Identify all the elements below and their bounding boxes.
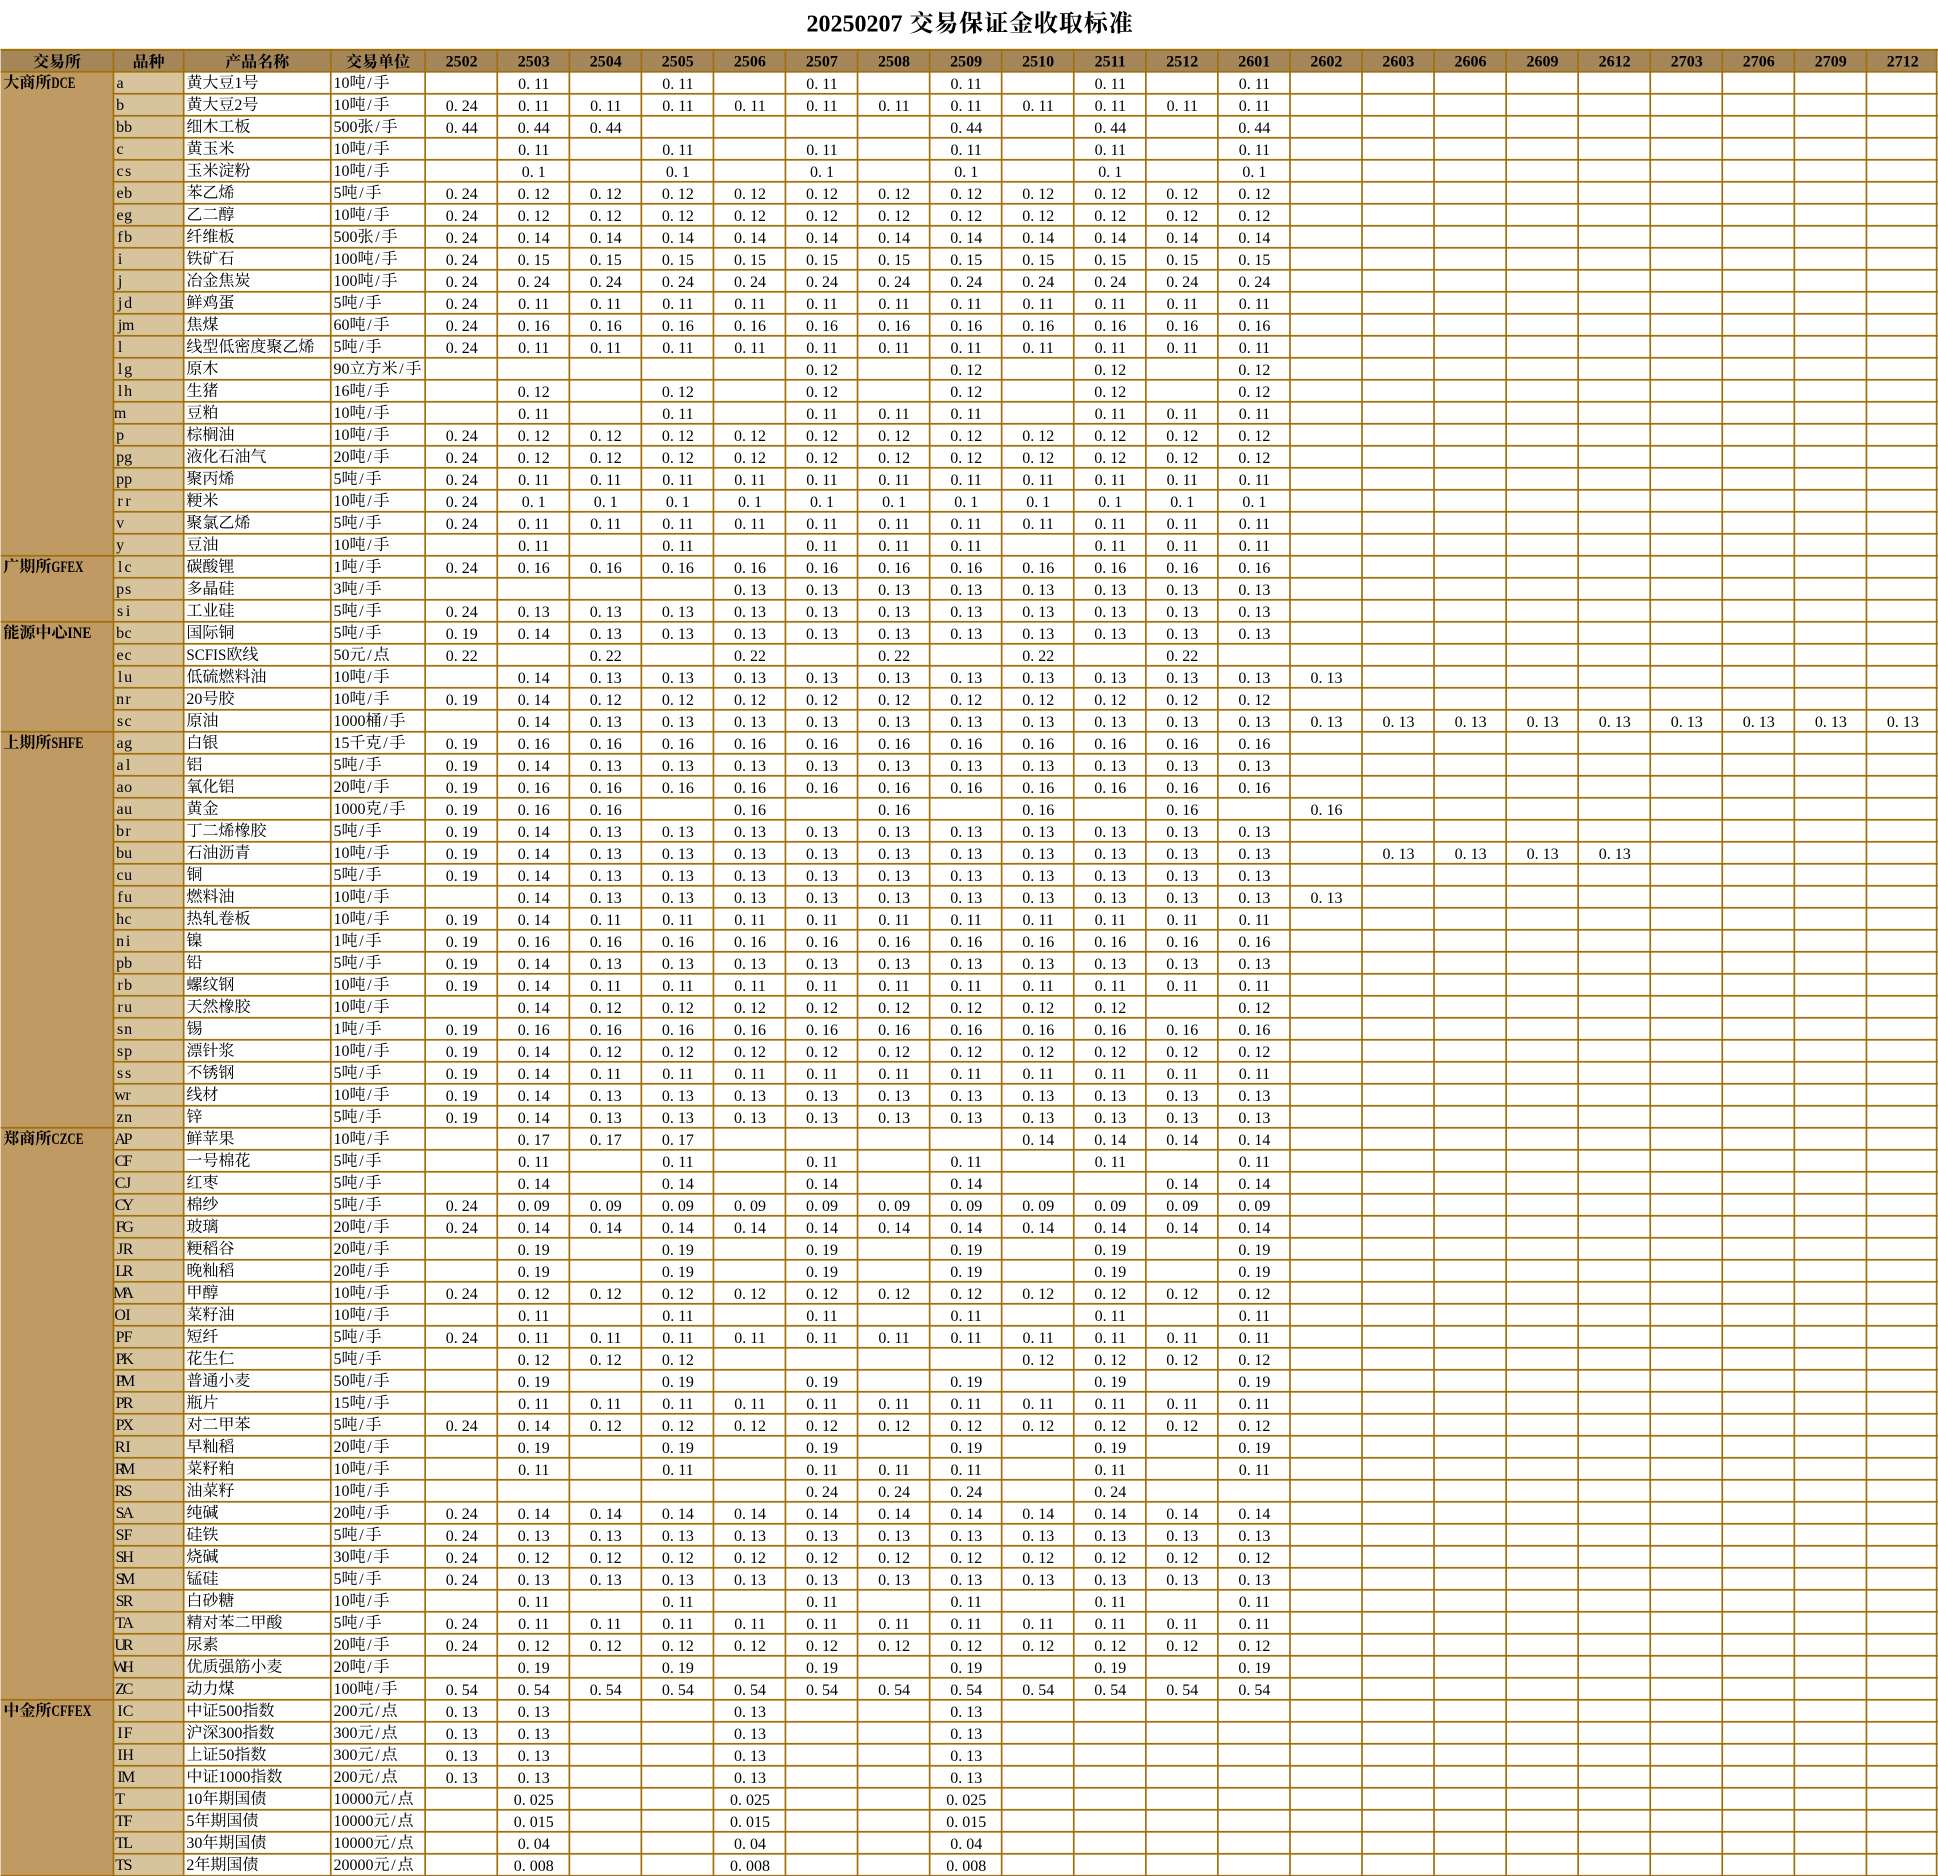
svg-text:0. 16: 0. 16 [590, 802, 622, 819]
svg-text:10: 10 [334, 889, 350, 906]
svg-text:10: 10 [334, 97, 350, 114]
svg-text:0. 19: 0. 19 [806, 1264, 838, 1281]
svg-text:/: / [383, 801, 388, 818]
svg-text:0. 1: 0. 1 [666, 494, 690, 511]
svg-text:0. 14: 0. 14 [950, 1176, 982, 1193]
svg-text:/: / [367, 999, 372, 1016]
svg-text:0. 19: 0. 19 [446, 846, 478, 863]
svg-text:0. 09: 0. 09 [734, 1198, 766, 1215]
svg-text:0. 19: 0. 19 [446, 1088, 478, 1105]
svg-text:0. 1: 0. 1 [1026, 494, 1050, 511]
svg-text:0. 16: 0. 16 [878, 780, 910, 797]
svg-text:0. 14: 0. 14 [518, 1066, 550, 1083]
svg-text:0. 12: 0. 12 [1094, 1044, 1126, 1061]
svg-text:0. 19: 0. 19 [518, 1242, 550, 1259]
svg-text:0. 16: 0. 16 [878, 1022, 910, 1039]
svg-text:0. 12: 0. 12 [950, 1550, 982, 1567]
svg-text:0. 11: 0. 11 [806, 978, 837, 995]
svg-text:/: / [359, 1197, 364, 1214]
svg-text:/: / [367, 1263, 372, 1280]
svg-text:X: X [122, 1417, 134, 1434]
svg-text:0. 16: 0. 16 [590, 934, 622, 951]
svg-text:0. 16: 0. 16 [518, 1022, 550, 1039]
svg-text:0. 16: 0. 16 [806, 318, 838, 335]
svg-text:0. 12: 0. 12 [1022, 1286, 1054, 1303]
svg-text:0. 1: 0. 1 [1098, 494, 1122, 511]
svg-text:0. 12: 0. 12 [950, 384, 982, 401]
svg-text:c: c [125, 713, 132, 730]
svg-text:0. 008: 0. 008 [514, 1858, 554, 1875]
svg-text:0. 13: 0. 13 [1022, 626, 1054, 643]
svg-text:0. 11: 0. 11 [1239, 1594, 1270, 1611]
svg-text:100: 100 [334, 1681, 358, 1698]
svg-text:/: / [367, 1373, 372, 1390]
svg-text:0. 13: 0. 13 [518, 1748, 550, 1765]
svg-text:/: / [367, 911, 372, 928]
svg-text:0. 13: 0. 13 [734, 714, 766, 731]
svg-text:0. 13: 0. 13 [1599, 846, 1631, 863]
svg-text:5: 5 [334, 1197, 342, 1214]
svg-text:0. 16: 0. 16 [1022, 780, 1054, 797]
svg-text:0. 54: 0. 54 [734, 1682, 766, 1699]
svg-text:0. 14: 0. 14 [1238, 1506, 1270, 1523]
svg-text:0. 13: 0. 13 [806, 868, 838, 885]
svg-text:/: / [375, 229, 380, 246]
svg-text:/: / [359, 185, 364, 202]
svg-text:0. 11: 0. 11 [950, 1396, 981, 1413]
svg-text:200: 200 [334, 1769, 358, 1786]
svg-text:0. 16: 0. 16 [734, 1022, 766, 1039]
svg-text:b: b [116, 97, 124, 114]
svg-text:0. 12: 0. 12 [1094, 1638, 1126, 1655]
svg-text:d: d [124, 295, 132, 312]
svg-text:20: 20 [334, 1505, 350, 1522]
svg-text:0. 11: 0. 11 [1239, 516, 1270, 533]
svg-text:0. 1: 0. 1 [1242, 164, 1266, 181]
svg-text:0. 44: 0. 44 [446, 120, 478, 137]
svg-text:i: i [126, 933, 131, 950]
svg-text:C: C [123, 1681, 134, 1698]
svg-text:0. 13: 0. 13 [518, 1528, 550, 1545]
svg-text:0. 14: 0. 14 [662, 1220, 694, 1237]
svg-text:0. 11: 0. 11 [518, 1396, 549, 1413]
svg-text:0. 11: 0. 11 [1095, 142, 1126, 159]
svg-text:0. 12: 0. 12 [662, 186, 694, 203]
svg-text:/: / [359, 1021, 364, 1038]
svg-text:GFEX: GFEX [51, 559, 83, 576]
svg-text:0. 13: 0. 13 [1022, 1572, 1054, 1589]
svg-text:2602: 2602 [1310, 54, 1342, 71]
svg-text:5: 5 [334, 471, 342, 488]
svg-text:0. 13: 0. 13 [590, 846, 622, 863]
svg-text:/: / [359, 295, 364, 312]
svg-text:0. 24: 0. 24 [446, 516, 478, 533]
svg-text:/: / [367, 427, 372, 444]
svg-text:0. 13: 0. 13 [950, 670, 982, 687]
svg-text:0. 12: 0. 12 [662, 1550, 694, 1567]
svg-text:10: 10 [334, 1461, 350, 1478]
svg-text:0. 12: 0. 12 [662, 1000, 694, 1017]
svg-text:30: 30 [186, 1835, 202, 1852]
svg-text:0. 14: 0. 14 [518, 824, 550, 841]
svg-text:0. 11: 0. 11 [806, 98, 837, 115]
svg-text:/: / [367, 317, 372, 334]
svg-text:0. 19: 0. 19 [446, 692, 478, 709]
svg-text:0. 12: 0. 12 [518, 428, 550, 445]
svg-text:100: 100 [334, 273, 358, 290]
svg-text:0. 12: 0. 12 [878, 1550, 910, 1567]
svg-text:0. 24: 0. 24 [1094, 274, 1126, 291]
svg-text:0. 15: 0. 15 [1166, 252, 1198, 269]
svg-text:0. 12: 0. 12 [950, 1418, 982, 1435]
svg-text:5: 5 [334, 1109, 342, 1126]
svg-text:10: 10 [334, 141, 350, 158]
svg-text:0. 11: 0. 11 [806, 1616, 837, 1633]
svg-text:5: 5 [334, 1351, 342, 1368]
svg-text:0. 16: 0. 16 [1166, 1022, 1198, 1039]
svg-text:0. 13: 0. 13 [1815, 714, 1847, 731]
svg-text:0. 13: 0. 13 [950, 1704, 982, 1721]
svg-text:/: / [367, 1241, 372, 1258]
svg-text:0. 16: 0. 16 [518, 802, 550, 819]
svg-text:/: / [359, 757, 364, 774]
svg-text:30: 30 [334, 1549, 350, 1566]
svg-text:0. 19: 0. 19 [1094, 1264, 1126, 1281]
svg-text:0. 14: 0. 14 [1238, 1220, 1270, 1237]
svg-text:0. 13: 0. 13 [1166, 846, 1198, 863]
svg-text:0. 16: 0. 16 [1166, 560, 1198, 577]
svg-text:n: n [124, 1109, 132, 1126]
svg-text:0. 14: 0. 14 [1166, 1220, 1198, 1237]
svg-text:0. 12: 0. 12 [1166, 1550, 1198, 1567]
svg-text:0. 13: 0. 13 [806, 582, 838, 599]
svg-text:0. 11: 0. 11 [1239, 340, 1270, 357]
svg-text:/: / [359, 1417, 364, 1434]
svg-text:0. 11: 0. 11 [950, 98, 981, 115]
svg-text:0. 1: 0. 1 [810, 494, 834, 511]
svg-text:0. 13: 0. 13 [1238, 956, 1270, 973]
svg-text:0. 16: 0. 16 [734, 802, 766, 819]
svg-text:/: / [367, 1637, 372, 1654]
svg-text:0. 11: 0. 11 [518, 1308, 549, 1325]
svg-text:0. 12: 0. 12 [518, 1286, 550, 1303]
svg-text:0. 19: 0. 19 [446, 956, 478, 973]
svg-text:0. 11: 0. 11 [1239, 978, 1270, 995]
svg-text:0. 16: 0. 16 [950, 1022, 982, 1039]
svg-text:0. 13: 0. 13 [662, 890, 694, 907]
svg-text:5: 5 [334, 757, 342, 774]
svg-text:/: / [367, 779, 372, 796]
svg-text:0. 16: 0. 16 [806, 736, 838, 753]
svg-text:0. 11: 0. 11 [806, 912, 837, 929]
svg-text:M: M [121, 1571, 135, 1588]
svg-text:0. 13: 0. 13 [1238, 824, 1270, 841]
svg-text:0. 11: 0. 11 [518, 516, 549, 533]
svg-text:5: 5 [334, 1175, 342, 1192]
svg-text:s: s [125, 1065, 131, 1082]
svg-text:0. 12: 0. 12 [1238, 450, 1270, 467]
svg-text:0. 13: 0. 13 [662, 604, 694, 621]
svg-text:0. 13: 0. 13 [1166, 604, 1198, 621]
svg-text:0. 1: 0. 1 [522, 494, 546, 511]
svg-text:0. 22: 0. 22 [1022, 648, 1054, 665]
svg-text:0. 11: 0. 11 [1167, 1396, 1198, 1413]
svg-text:/: / [375, 1703, 380, 1720]
svg-text:0. 11: 0. 11 [1095, 1308, 1126, 1325]
svg-text:R: R [123, 1593, 134, 1610]
svg-text:s: s [117, 1021, 123, 1038]
svg-text:0. 24: 0. 24 [1238, 274, 1270, 291]
svg-text:0. 11: 0. 11 [1022, 1066, 1053, 1083]
svg-text:/: / [367, 845, 372, 862]
svg-text:0. 13: 0. 13 [1022, 582, 1054, 599]
svg-text:0. 11: 0. 11 [662, 1066, 693, 1083]
svg-text:0. 13: 0. 13 [878, 714, 910, 731]
svg-text:0. 12: 0. 12 [662, 208, 694, 225]
svg-text:0. 11: 0. 11 [806, 340, 837, 357]
svg-text:0. 11: 0. 11 [1167, 1066, 1198, 1083]
svg-text:0. 11: 0. 11 [590, 1616, 621, 1633]
svg-text:0. 11: 0. 11 [1022, 296, 1053, 313]
svg-text:0. 1: 0. 1 [522, 164, 546, 181]
svg-text:0. 11: 0. 11 [590, 1396, 621, 1413]
svg-text:0. 025: 0. 025 [514, 1792, 554, 1809]
svg-text:0. 24: 0. 24 [950, 274, 982, 291]
svg-text:0. 14: 0. 14 [518, 956, 550, 973]
svg-text:0. 12: 0. 12 [1022, 1352, 1054, 1369]
svg-text:10: 10 [334, 669, 350, 686]
svg-text:0. 13: 0. 13 [1238, 670, 1270, 687]
svg-text:2603: 2603 [1382, 54, 1414, 71]
svg-text:0. 19: 0. 19 [1238, 1264, 1270, 1281]
svg-text:0. 13: 0. 13 [1166, 868, 1198, 885]
svg-text:e: e [117, 207, 124, 224]
svg-text:0. 22: 0. 22 [446, 648, 478, 665]
svg-text:2510: 2510 [1022, 54, 1054, 71]
svg-text:1: 1 [334, 1021, 342, 1038]
svg-text:0. 13: 0. 13 [806, 626, 838, 643]
svg-text:0. 16: 0. 16 [1094, 736, 1126, 753]
svg-text:/: / [359, 603, 364, 620]
svg-text:g: g [124, 449, 132, 466]
svg-text:0. 13: 0. 13 [1094, 1088, 1126, 1105]
svg-text:0. 13: 0. 13 [1022, 1110, 1054, 1127]
svg-text:0. 12: 0. 12 [806, 428, 838, 445]
svg-text:0. 16: 0. 16 [1238, 560, 1270, 577]
svg-text:/: / [359, 1153, 364, 1170]
svg-text:0. 12: 0. 12 [1094, 428, 1126, 445]
svg-text:0. 11: 0. 11 [1095, 1594, 1126, 1611]
svg-text:a: a [117, 735, 124, 752]
svg-text:10: 10 [334, 1593, 350, 1610]
svg-text:0. 24: 0. 24 [1166, 274, 1198, 291]
svg-text:0. 13: 0. 13 [878, 670, 910, 687]
svg-text:/: / [383, 735, 388, 752]
svg-text:0. 11: 0. 11 [518, 1154, 549, 1171]
svg-text:1000: 1000 [334, 713, 366, 730]
svg-text:DCE: DCE [51, 75, 75, 92]
svg-text:0. 11: 0. 11 [662, 1616, 693, 1633]
svg-text:0. 13: 0. 13 [734, 758, 766, 775]
svg-text:/: / [375, 119, 380, 136]
svg-text:0. 14: 0. 14 [518, 978, 550, 995]
svg-text:0. 24: 0. 24 [446, 1638, 478, 1655]
svg-text:0. 14: 0. 14 [1166, 1176, 1198, 1193]
svg-text:l: l [118, 383, 123, 400]
svg-text:0. 12: 0. 12 [1166, 1352, 1198, 1369]
svg-text:0. 13: 0. 13 [1166, 1110, 1198, 1127]
svg-text:0. 09: 0. 09 [950, 1198, 982, 1215]
svg-text:0. 19: 0. 19 [806, 1242, 838, 1259]
svg-text:0. 14: 0. 14 [1022, 1220, 1054, 1237]
svg-text:0. 1: 0. 1 [1242, 494, 1266, 511]
svg-text:0. 11: 0. 11 [878, 472, 909, 489]
svg-text:0. 16: 0. 16 [950, 560, 982, 577]
svg-text:l: l [126, 757, 131, 774]
svg-text:0. 14: 0. 14 [518, 1000, 550, 1017]
svg-text:/: / [367, 449, 372, 466]
svg-text:i: i [118, 251, 123, 268]
svg-text:0. 12: 0. 12 [518, 384, 550, 401]
svg-text:0. 24: 0. 24 [446, 560, 478, 577]
svg-text:c: c [125, 911, 132, 928]
svg-text:0. 11: 0. 11 [950, 406, 981, 423]
svg-text:0. 11: 0. 11 [950, 142, 981, 159]
svg-text:0. 11: 0. 11 [734, 1616, 765, 1633]
svg-text:0. 12: 0. 12 [1022, 1638, 1054, 1655]
svg-text:F: F [124, 1813, 133, 1830]
svg-text:0. 11: 0. 11 [590, 340, 621, 357]
svg-text:0. 12: 0. 12 [1094, 186, 1126, 203]
svg-text:0. 11: 0. 11 [806, 1308, 837, 1325]
svg-text:0. 12: 0. 12 [1022, 450, 1054, 467]
svg-text:l: l [118, 559, 123, 576]
svg-text:0. 19: 0. 19 [662, 1440, 694, 1457]
svg-text:5: 5 [334, 295, 342, 312]
svg-text:0. 13: 0. 13 [1166, 758, 1198, 775]
svg-text:2511: 2511 [1095, 54, 1126, 71]
svg-text:b: b [124, 977, 132, 994]
svg-text:0. 24: 0. 24 [446, 1198, 478, 1215]
svg-text:0. 13: 0. 13 [1166, 1088, 1198, 1105]
svg-text:0. 12: 0. 12 [590, 692, 622, 709]
svg-text:0. 09: 0. 09 [1022, 1198, 1054, 1215]
svg-text:r: r [125, 823, 131, 840]
svg-text:0. 13: 0. 13 [950, 582, 982, 599]
svg-text:/: / [367, 1483, 372, 1500]
svg-text:0. 11: 0. 11 [806, 538, 837, 555]
svg-text:/: / [391, 1791, 396, 1808]
svg-text:0. 14: 0. 14 [662, 230, 694, 247]
svg-text:b: b [124, 185, 132, 202]
svg-text:0. 19: 0. 19 [662, 1660, 694, 1677]
svg-text:0. 09: 0. 09 [590, 1198, 622, 1215]
svg-text:0. 13: 0. 13 [446, 1770, 478, 1787]
svg-text:c: c [117, 141, 124, 158]
svg-text:0. 19: 0. 19 [950, 1374, 982, 1391]
svg-text:0. 12: 0. 12 [950, 1638, 982, 1655]
svg-text:c: c [117, 163, 124, 180]
svg-text:0. 11: 0. 11 [590, 296, 621, 313]
svg-text:/: / [359, 471, 364, 488]
svg-text:H: H [122, 1747, 134, 1764]
svg-text:1: 1 [334, 933, 342, 950]
svg-text:0. 16: 0. 16 [1311, 802, 1343, 819]
svg-text:0. 13: 0. 13 [734, 582, 766, 599]
svg-text:0. 13: 0. 13 [734, 1726, 766, 1743]
svg-text:0. 11: 0. 11 [806, 1066, 837, 1083]
svg-text:S: S [124, 1857, 133, 1874]
svg-text:0. 13: 0. 13 [1094, 846, 1126, 863]
svg-text:0. 11: 0. 11 [734, 978, 765, 995]
svg-text:0. 11: 0. 11 [878, 1330, 909, 1347]
svg-text:0. 12: 0. 12 [518, 186, 550, 203]
svg-text:0. 13: 0. 13 [1166, 824, 1198, 841]
svg-text:20: 20 [334, 779, 350, 796]
svg-text:0. 24: 0. 24 [446, 450, 478, 467]
svg-text:0. 13: 0. 13 [806, 714, 838, 731]
svg-text:0. 16: 0. 16 [950, 780, 982, 797]
svg-text:0. 025: 0. 025 [730, 1792, 770, 1809]
svg-text:0. 025: 0. 025 [946, 1792, 986, 1809]
svg-text:0. 13: 0. 13 [662, 1528, 694, 1545]
svg-text:u: u [124, 999, 132, 1016]
svg-text:2609: 2609 [1527, 54, 1559, 71]
svg-text:0. 11: 0. 11 [1239, 1308, 1270, 1325]
svg-text:0. 12: 0. 12 [1022, 186, 1054, 203]
svg-text:5: 5 [334, 185, 342, 202]
svg-text:0. 13: 0. 13 [1022, 1528, 1054, 1545]
svg-text:0. 11: 0. 11 [518, 472, 549, 489]
svg-text:0. 13: 0. 13 [1022, 604, 1054, 621]
svg-text:A: A [122, 1505, 134, 1522]
svg-text:0. 24: 0. 24 [446, 208, 478, 225]
svg-text:0. 16: 0. 16 [1022, 1022, 1054, 1039]
svg-text:0. 13: 0. 13 [878, 626, 910, 643]
svg-text:0. 12: 0. 12 [518, 208, 550, 225]
svg-text:M: M [121, 1461, 135, 1478]
svg-text:0. 11: 0. 11 [950, 538, 981, 555]
svg-text:0. 11: 0. 11 [518, 1462, 549, 1479]
svg-text:0. 13: 0. 13 [1383, 714, 1415, 731]
svg-text:/: / [399, 361, 404, 378]
svg-text:0. 12: 0. 12 [590, 1000, 622, 1017]
svg-text:j: j [117, 273, 122, 290]
svg-text:A: A [122, 1285, 134, 1302]
svg-text:0. 13: 0. 13 [590, 670, 622, 687]
svg-text:0. 12: 0. 12 [1094, 1550, 1126, 1567]
svg-text:0. 24: 0. 24 [446, 1550, 478, 1567]
svg-text:0. 19: 0. 19 [806, 1660, 838, 1677]
svg-text:/: / [359, 1351, 364, 1368]
svg-text:0. 12: 0. 12 [1238, 692, 1270, 709]
svg-text:A: A [122, 1615, 134, 1632]
svg-text:0. 12: 0. 12 [1166, 1286, 1198, 1303]
svg-text:/: / [359, 955, 364, 972]
svg-text:R: R [123, 1395, 134, 1412]
svg-text:0. 12: 0. 12 [878, 1286, 910, 1303]
svg-text:0. 15: 0. 15 [662, 252, 694, 269]
svg-text:/: / [359, 1109, 364, 1126]
svg-text:0. 13: 0. 13 [1166, 626, 1198, 643]
svg-text:0. 13: 0. 13 [1311, 890, 1343, 907]
svg-text:0. 24: 0. 24 [446, 98, 478, 115]
svg-text:0. 09: 0. 09 [518, 1198, 550, 1215]
svg-text:h: h [116, 911, 124, 928]
svg-text:0. 13: 0. 13 [950, 890, 982, 907]
svg-text:0. 16: 0. 16 [518, 318, 550, 335]
svg-text:/: / [367, 1131, 372, 1148]
